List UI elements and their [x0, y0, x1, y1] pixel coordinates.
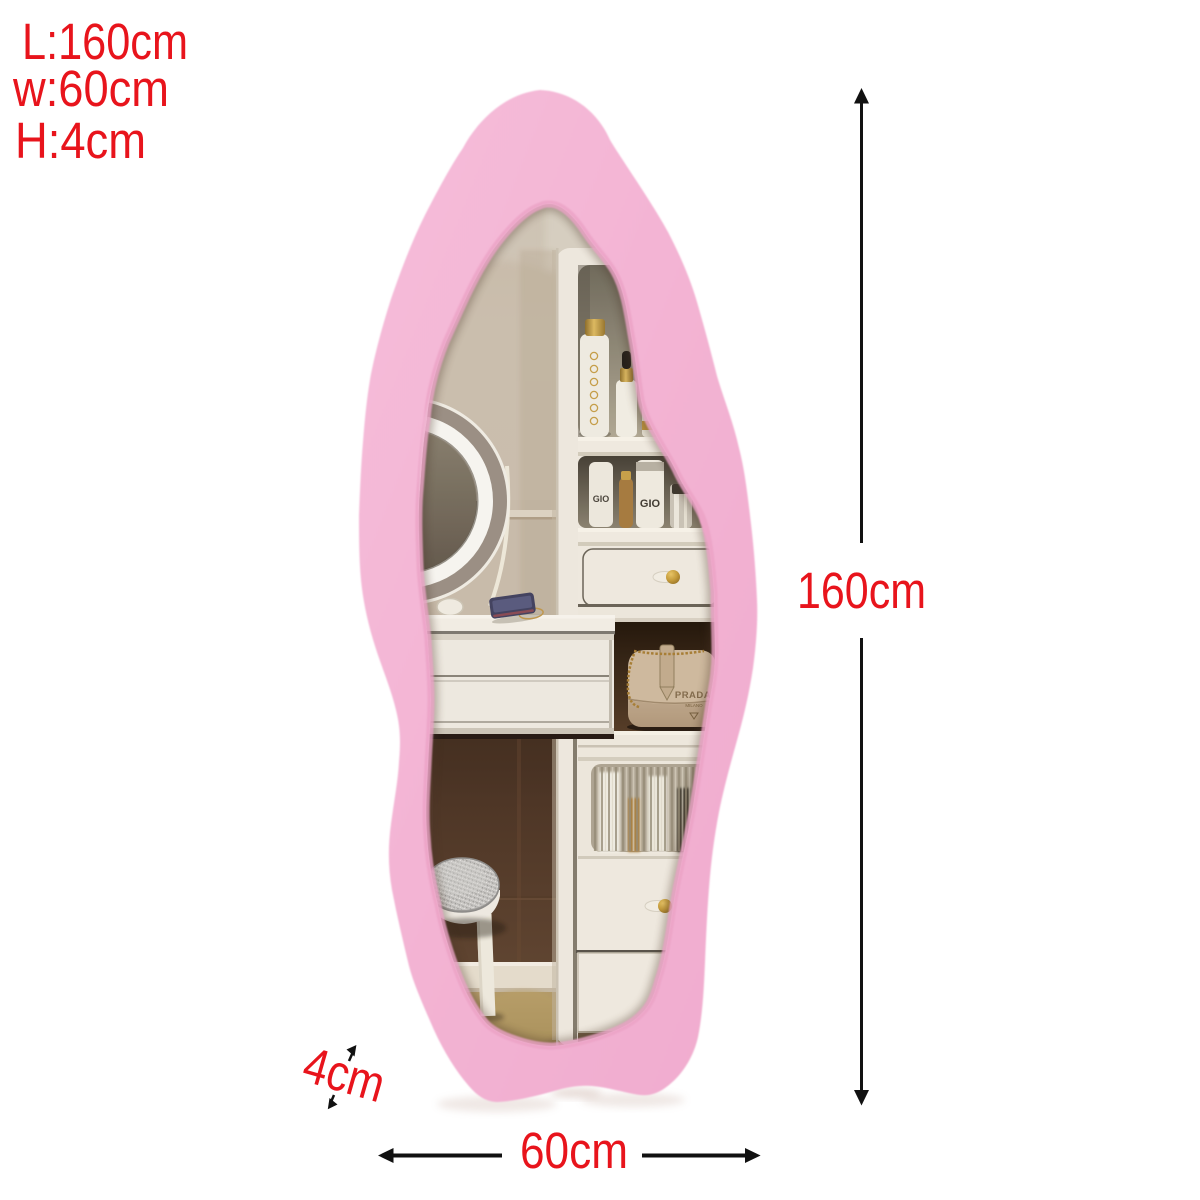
svg-text:160cm: 160cm — [797, 562, 926, 619]
svg-text:w:60cm: w:60cm — [12, 60, 169, 117]
svg-text:H:4cm: H:4cm — [15, 112, 146, 169]
svg-text:60cm: 60cm — [520, 1122, 628, 1179]
